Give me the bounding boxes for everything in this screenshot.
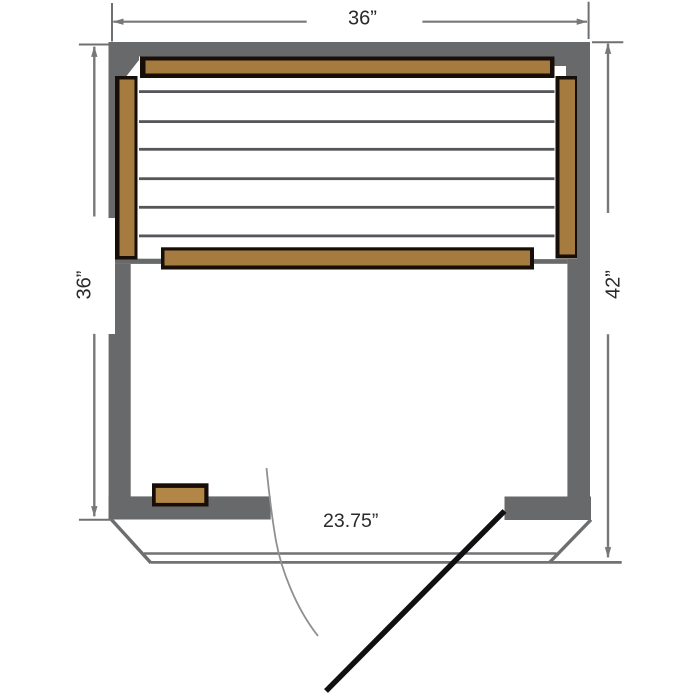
svg-text:36”: 36” [74,271,96,300]
svg-text:36”: 36” [348,8,377,30]
svg-text:42”: 42” [603,270,625,299]
svg-text:23.75”: 23.75” [323,510,378,532]
